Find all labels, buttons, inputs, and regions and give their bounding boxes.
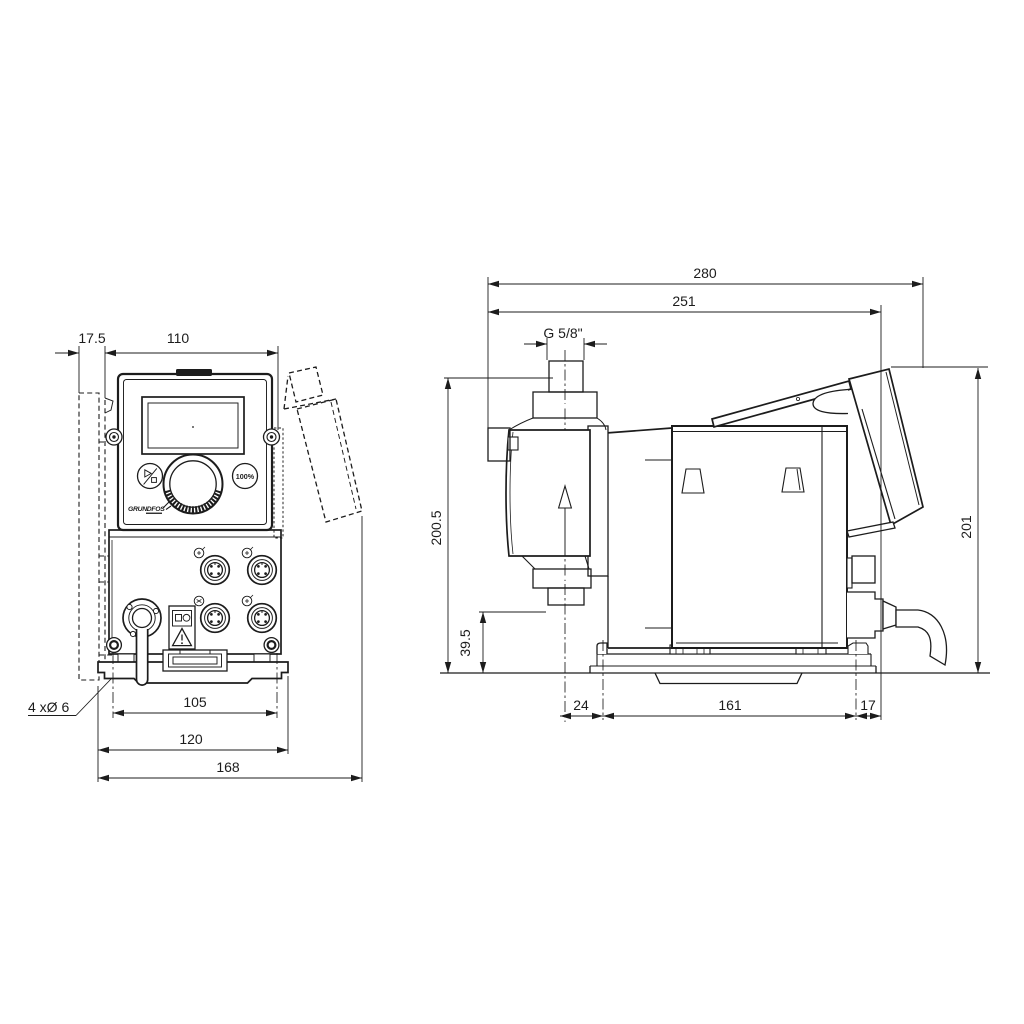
dim-label-24: 24 [573, 697, 589, 713]
head-flange [588, 426, 608, 576]
panel-screw-left [106, 429, 122, 445]
dim-label-105: 105 [183, 694, 207, 710]
pump-main-body [672, 426, 847, 648]
base-plate-side [440, 640, 990, 720]
dim-label-110: 110 [167, 330, 190, 346]
drawing-canvas: 100% GRUNDFOS [0, 0, 1024, 1024]
dim-label-120: 120 [179, 731, 203, 747]
click-wheel[interactable] [164, 455, 223, 514]
m12-connector[interactable] [248, 556, 277, 585]
pump-front-section [606, 428, 672, 648]
dosing-head-assembly [488, 361, 608, 605]
outlet-nut [533, 569, 591, 588]
dim-label-201: 201 [958, 515, 974, 539]
mains-gland [847, 556, 875, 588]
hood-slab [849, 369, 923, 525]
corner-screw-left [107, 638, 122, 653]
dim-label-161: 161 [718, 697, 742, 713]
corner-screw-right [264, 638, 279, 653]
control-panel: 100% GRUNDFOS [106, 369, 283, 538]
dim-plate-width: 120 [98, 676, 288, 782]
dim-outlet-height: 39.5 [457, 612, 546, 673]
dim-label-17-5: 17.5 [78, 330, 105, 346]
logo-text: GRUNDFOS [128, 506, 165, 513]
power-cable-side [896, 610, 946, 665]
dim-foot-length: 161 [603, 697, 856, 716]
m12-connector[interactable] [248, 604, 277, 633]
side-view: 280 251 G 5/8" 200.5 3 [428, 265, 990, 722]
hood-bottom-flap [847, 522, 895, 537]
dim-front-offset: 24 [560, 697, 603, 716]
panel-top-tab [176, 369, 212, 376]
front-view: 100% GRUNDFOS [28, 330, 362, 782]
outlet-thread [548, 588, 584, 605]
dim-label-thread: G 5/8" [543, 325, 582, 341]
panel-screw-right [264, 429, 280, 445]
holes-callout: 4 xØ 6 [28, 679, 111, 716]
dim-label-17: 17 [860, 697, 876, 713]
display [142, 397, 244, 454]
dim-label-280: 280 [693, 265, 717, 281]
bracket-hook [105, 398, 113, 413]
dim-label-251: 251 [672, 293, 696, 309]
dim-wall-offset: 17.5 [55, 330, 106, 398]
dosing-head [506, 430, 590, 556]
dim-label-168: 168 [216, 759, 240, 775]
power-cable-front [137, 629, 148, 685]
front-foot [597, 643, 607, 654]
inlet-thread [549, 361, 583, 392]
warning-label [169, 606, 195, 649]
capacity-button[interactable]: 100% [233, 464, 258, 489]
mounting-clip [682, 469, 704, 493]
hood-outline-hidden [284, 367, 362, 522]
start-stop-button[interactable] [138, 464, 163, 489]
mounting-clip [782, 468, 804, 492]
dim-label-200-5: 200.5 [428, 510, 444, 545]
technical-drawing: 100% GRUNDFOS [0, 0, 1024, 1024]
connector-icon [194, 596, 204, 606]
dim-thread: G 5/8" [524, 325, 607, 360]
rear-foot [848, 643, 868, 654]
dim-hole-spacing: 105 [113, 694, 277, 713]
dim-rear-offset: 17 [856, 697, 881, 716]
dim-label-39-5: 39.5 [457, 629, 473, 656]
mounting-latch [163, 650, 227, 671]
capacity-button-label: 100% [236, 472, 255, 481]
holes-label: 4 xØ 6 [28, 699, 69, 715]
m12-connector[interactable] [201, 556, 230, 585]
m12-connector[interactable] [201, 604, 230, 633]
